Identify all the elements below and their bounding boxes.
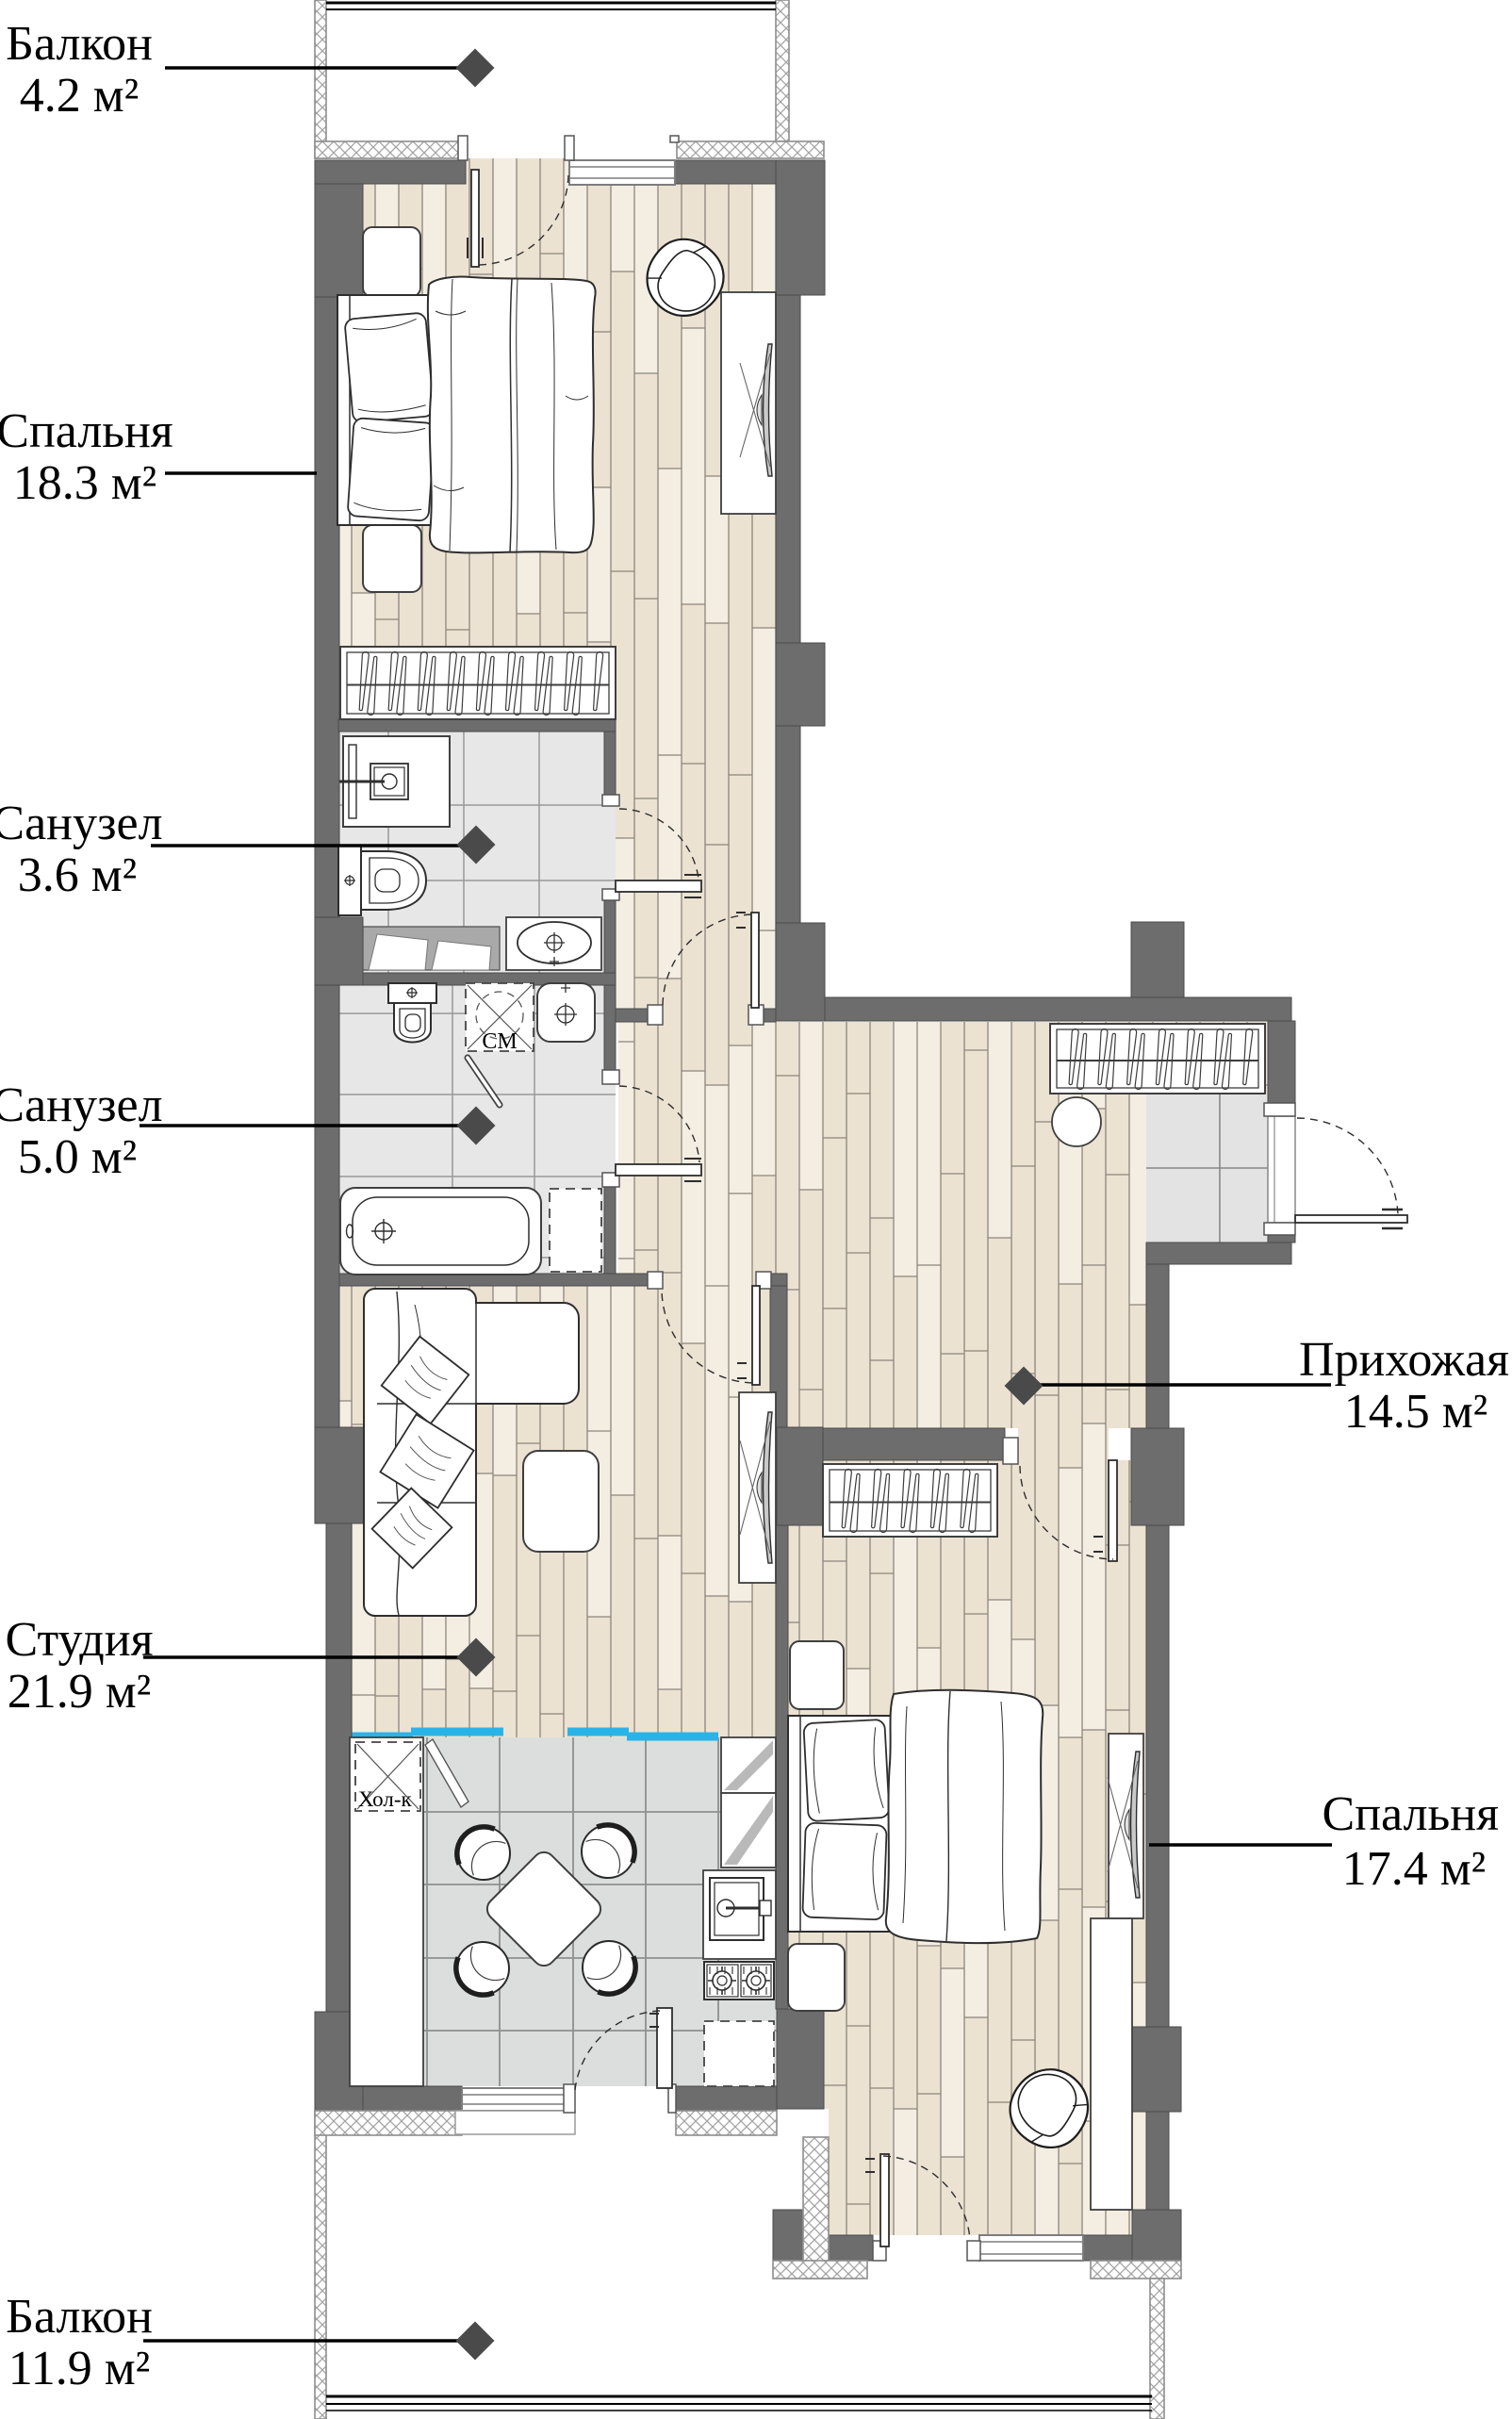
svg-text:3.6 м²: 3.6 м² [18,848,138,902]
svg-text:17.4 м²: 17.4 м² [1342,1842,1487,1896]
svg-text:21.9 м²: 21.9 м² [8,1665,152,1719]
svg-text:Балкон: Балкон [6,17,153,71]
svg-text:18.3 м²: 18.3 м² [13,456,157,510]
svg-text:Спальня: Спальня [1323,1787,1499,1841]
svg-text:Студия: Студия [6,1613,154,1667]
svg-text:Прихожая: Прихожая [1299,1333,1509,1387]
svg-text:Балкон: Балкон [6,2290,153,2344]
svg-text:11.9 м²: 11.9 м² [8,2342,151,2395]
svg-text:Спальня: Спальня [0,404,173,458]
svg-text:Хол-к: Хол-к [358,1787,412,1811]
svg-text:Санузел: Санузел [0,797,163,850]
svg-text:4.2 м²: 4.2 м² [20,69,140,123]
svg-text:14.5 м²: 14.5 м² [1344,1385,1488,1439]
svg-text:СМ: СМ [482,1029,517,1054]
svg-text:Санузел: Санузел [0,1078,163,1132]
svg-text:5.0 м²: 5.0 м² [18,1130,138,1184]
